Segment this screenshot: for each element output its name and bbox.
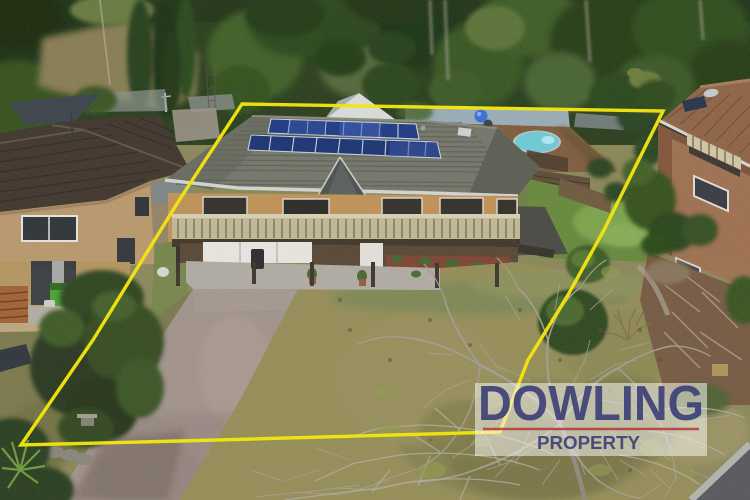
svg-text:DOWLING: DOWLING bbox=[478, 377, 704, 431]
svg-text:PROPERTY: PROPERTY bbox=[537, 433, 640, 453]
